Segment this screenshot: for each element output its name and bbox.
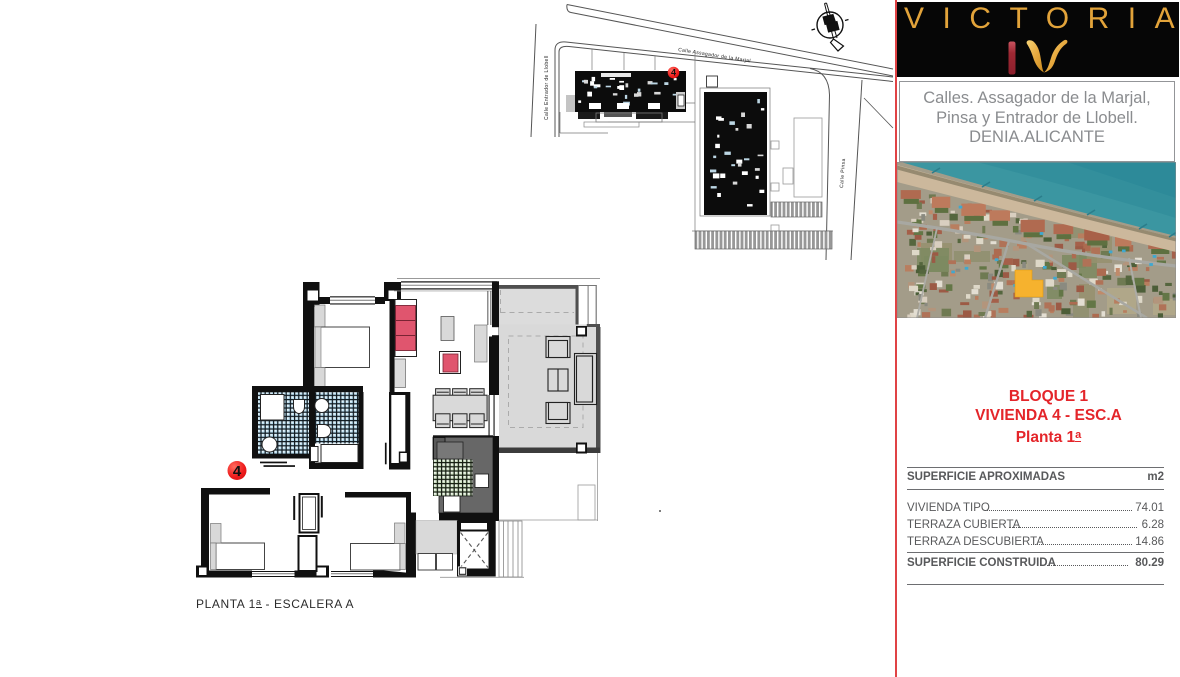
svg-text:Calle Pinsa: Calle Pinsa (839, 158, 847, 188)
svg-text:Calle Entrador de Llobell: Calle Entrador de Llobell (544, 55, 550, 120)
svg-text:4: 4 (233, 463, 242, 480)
svg-text:4: 4 (671, 68, 676, 78)
